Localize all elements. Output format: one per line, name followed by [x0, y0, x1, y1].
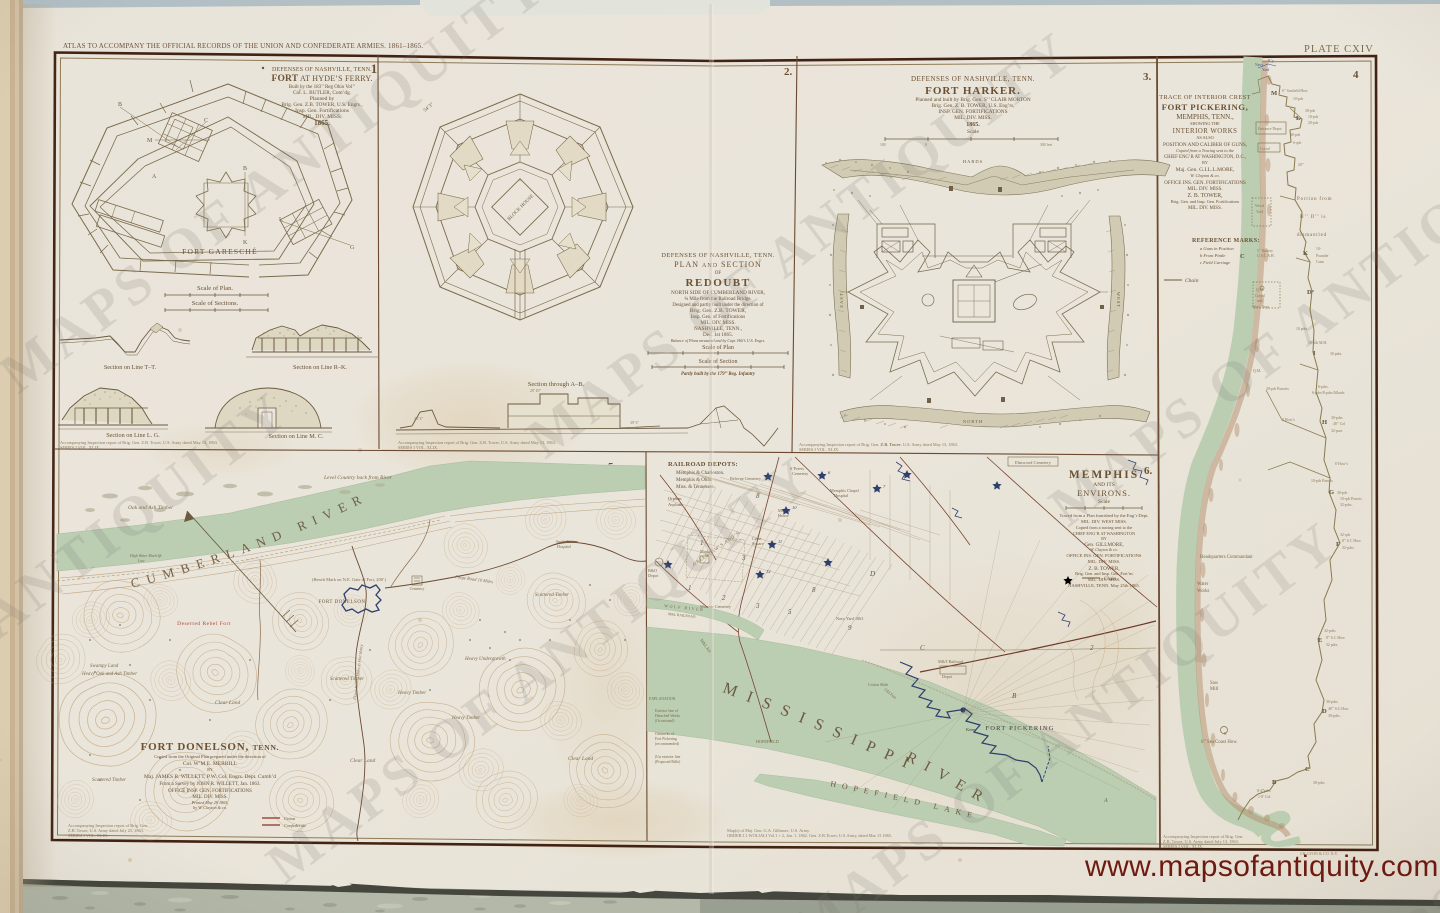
svg-text:www.mapsofantiquity.com: www.mapsofantiquity.com: [1084, 850, 1439, 883]
